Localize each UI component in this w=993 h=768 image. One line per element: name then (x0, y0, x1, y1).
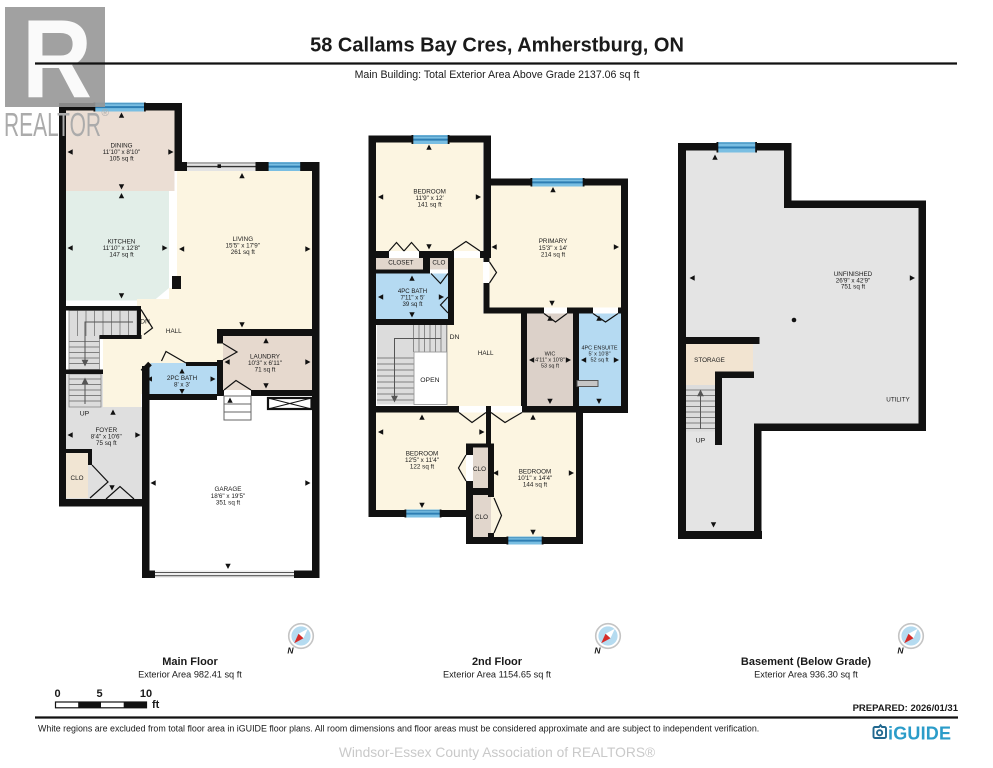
svg-text:52 sq ft: 52 sq ft (590, 357, 609, 363)
svg-text:71 sq ft: 71 sq ft (255, 367, 276, 374)
svg-text:122 sq ft: 122 sq ft (410, 463, 434, 470)
svg-text:®: ® (102, 108, 110, 119)
svg-text:CLO: CLO (432, 260, 445, 267)
svg-text:HALL: HALL (166, 328, 182, 335)
svg-text:UTILITY: UTILITY (886, 396, 910, 403)
svg-text:0: 0 (54, 688, 60, 700)
svg-text:261 sq ft: 261 sq ft (231, 249, 255, 256)
svg-text:141 sq ft: 141 sq ft (418, 201, 442, 208)
svg-text:39 sq ft: 39 sq ft (403, 301, 423, 308)
svg-text:75 sq ft: 75 sq ft (96, 440, 117, 447)
svg-text:53 sq ft: 53 sq ft (541, 364, 560, 370)
svg-text:4′11" x 10′8": 4′11" x 10′8" (535, 357, 565, 363)
svg-text:Exterior Area 982.41 sq ft: Exterior Area 982.41 sq ft (138, 670, 242, 680)
svg-text:CLO: CLO (473, 466, 486, 473)
svg-text:147 sq ft: 147 sq ft (109, 252, 133, 259)
svg-text:CLO: CLO (475, 514, 488, 521)
svg-text:PREPARED: 2026/01/31: PREPARED: 2026/01/31 (853, 703, 959, 714)
svg-text:Exterior Area 1154.65 sq ft: Exterior Area 1154.65 sq ft (443, 670, 552, 680)
svg-text:STORAGE: STORAGE (694, 357, 725, 364)
svg-text:751 sq ft: 751 sq ft (841, 284, 865, 291)
svg-text:Basement (Below Grade): Basement (Below Grade) (741, 656, 872, 668)
svg-text:White regions are excluded fro: White regions are excluded from total fl… (38, 724, 759, 734)
svg-text:UP: UP (696, 437, 706, 444)
svg-text:Exterior Area 936.30 sq ft: Exterior Area 936.30 sq ft (754, 670, 858, 680)
svg-text:214 sq ft: 214 sq ft (541, 251, 565, 258)
svg-text:ft: ft (152, 699, 160, 711)
svg-text:REALTOR: REALTOR (4, 106, 101, 143)
svg-text:58 Callams Bay Cres, Amherstbu: 58 Callams Bay Cres, Amherstburg, ON (310, 35, 684, 57)
svg-text:OPEN: OPEN (420, 377, 439, 384)
svg-text:105 sq ft: 105 sq ft (109, 156, 133, 163)
svg-text:Main Floor: Main Floor (162, 656, 218, 668)
svg-text:CLOSET: CLOSET (388, 259, 413, 266)
svg-text:8' x 3': 8' x 3' (174, 381, 190, 388)
svg-text:N: N (594, 646, 601, 656)
svg-text:CLO: CLO (71, 475, 84, 482)
svg-text:5: 5 (96, 688, 102, 700)
svg-text:DN: DN (140, 318, 150, 325)
svg-text:Main Building: Total Exterior: Main Building: Total Exterior Area Above… (355, 69, 640, 81)
svg-text:10: 10 (140, 688, 152, 700)
svg-text:N: N (287, 646, 294, 656)
svg-text:N: N (897, 646, 904, 656)
svg-text:HALL: HALL (478, 350, 494, 357)
svg-text:351 sq ft: 351 sq ft (216, 500, 240, 507)
svg-text:R: R (22, 0, 92, 121)
svg-text:2nd Floor: 2nd Floor (472, 656, 523, 668)
svg-text:WIC: WIC (545, 351, 556, 357)
svg-text:Windsor-Essex County Associati: Windsor-Essex County Association of REAL… (339, 745, 655, 760)
svg-text:iGUIDE: iGUIDE (888, 724, 951, 744)
svg-text:DN: DN (450, 334, 460, 341)
svg-text:UP: UP (80, 410, 90, 417)
svg-text:5′ x 10′8": 5′ x 10′8" (588, 351, 610, 357)
svg-text:144 sq ft: 144 sq ft (523, 481, 547, 488)
